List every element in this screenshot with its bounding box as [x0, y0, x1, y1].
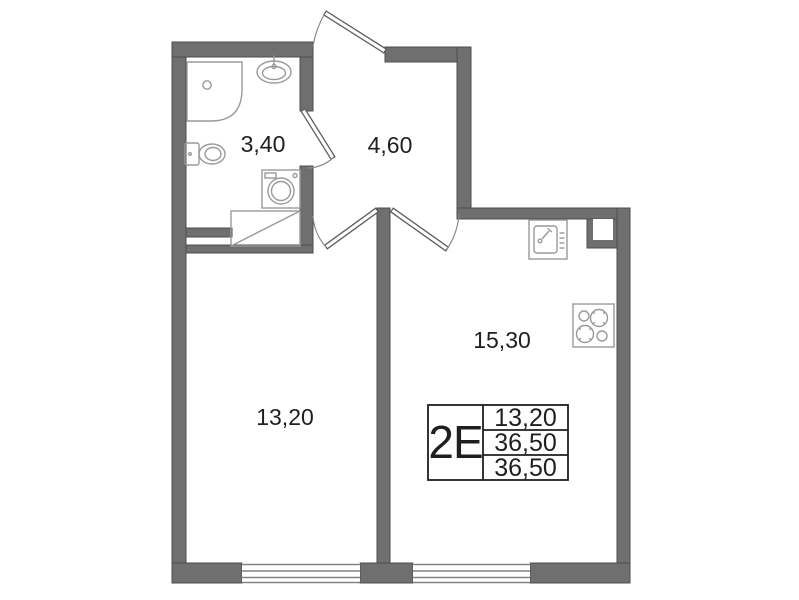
info-table-value-row3: 36,50 — [494, 454, 557, 482]
kitchen-sink-icon — [529, 220, 567, 259]
bathroom-right-wall-lower — [300, 166, 313, 253]
floor-plan-canvas: 3,40 4,60 13,20 15,30 2Е 13,20 36,50 36,… — [0, 0, 799, 600]
window-right — [413, 563, 530, 583]
living-room-door — [313, 208, 378, 249]
top-wall-left — [172, 42, 313, 57]
hallway-area-label: 4,60 — [368, 132, 413, 158]
bathroom-right-wall-upper — [300, 57, 313, 111]
apartment-info-table: 2Е 13,20 36,50 36,50 — [428, 404, 568, 482]
entrance-door — [313, 11, 386, 53]
living-room-door-leaf — [325, 208, 379, 249]
kitchen-area-label: 15,30 — [473, 327, 531, 353]
door-swing-icon — [313, 13, 325, 46]
stove-icon — [573, 304, 614, 347]
shower-icon — [187, 62, 242, 121]
info-table-value-row1: 13,20 — [494, 404, 557, 432]
bottom-wall-left-pier — [172, 563, 242, 583]
toilet-icon — [185, 143, 225, 165]
window-left — [242, 563, 360, 583]
wardrobe-icon — [231, 211, 300, 246]
bathroom-area-label: 3,40 — [241, 131, 286, 157]
vent-shaft-icon — [587, 219, 617, 248]
kitchen-top-wall — [457, 208, 630, 219]
bathroom-door-leaf — [301, 109, 335, 159]
right-wall — [617, 208, 630, 583]
bottom-wall-right-pier — [530, 563, 630, 583]
bathroom-bottom-stub — [186, 228, 232, 237]
bottom-wall-mid-pier — [360, 563, 413, 583]
walls — [172, 42, 630, 583]
left-wall — [172, 42, 186, 583]
entrance-door-leaf — [324, 11, 386, 53]
window-opening — [413, 563, 530, 583]
bathroom-door — [301, 109, 335, 168]
kitchen-door-leaf — [391, 208, 449, 251]
info-table-value-row2: 36,50 — [494, 429, 557, 457]
living-room-area-label: 13,20 — [256, 404, 314, 430]
kitchen-door — [391, 208, 459, 251]
washbasin-icon — [257, 56, 291, 84]
washing-machine-icon — [262, 170, 300, 208]
floor-plan: 3,40 4,60 13,20 15,30 2Е 13,20 36,50 36,… — [0, 0, 799, 600]
apartment-type-label: 2Е — [428, 416, 482, 468]
hallway-right-wall — [457, 47, 471, 212]
door-swing-icon — [313, 216, 326, 247]
interroom-wall — [377, 208, 390, 565]
window-opening — [242, 563, 360, 583]
